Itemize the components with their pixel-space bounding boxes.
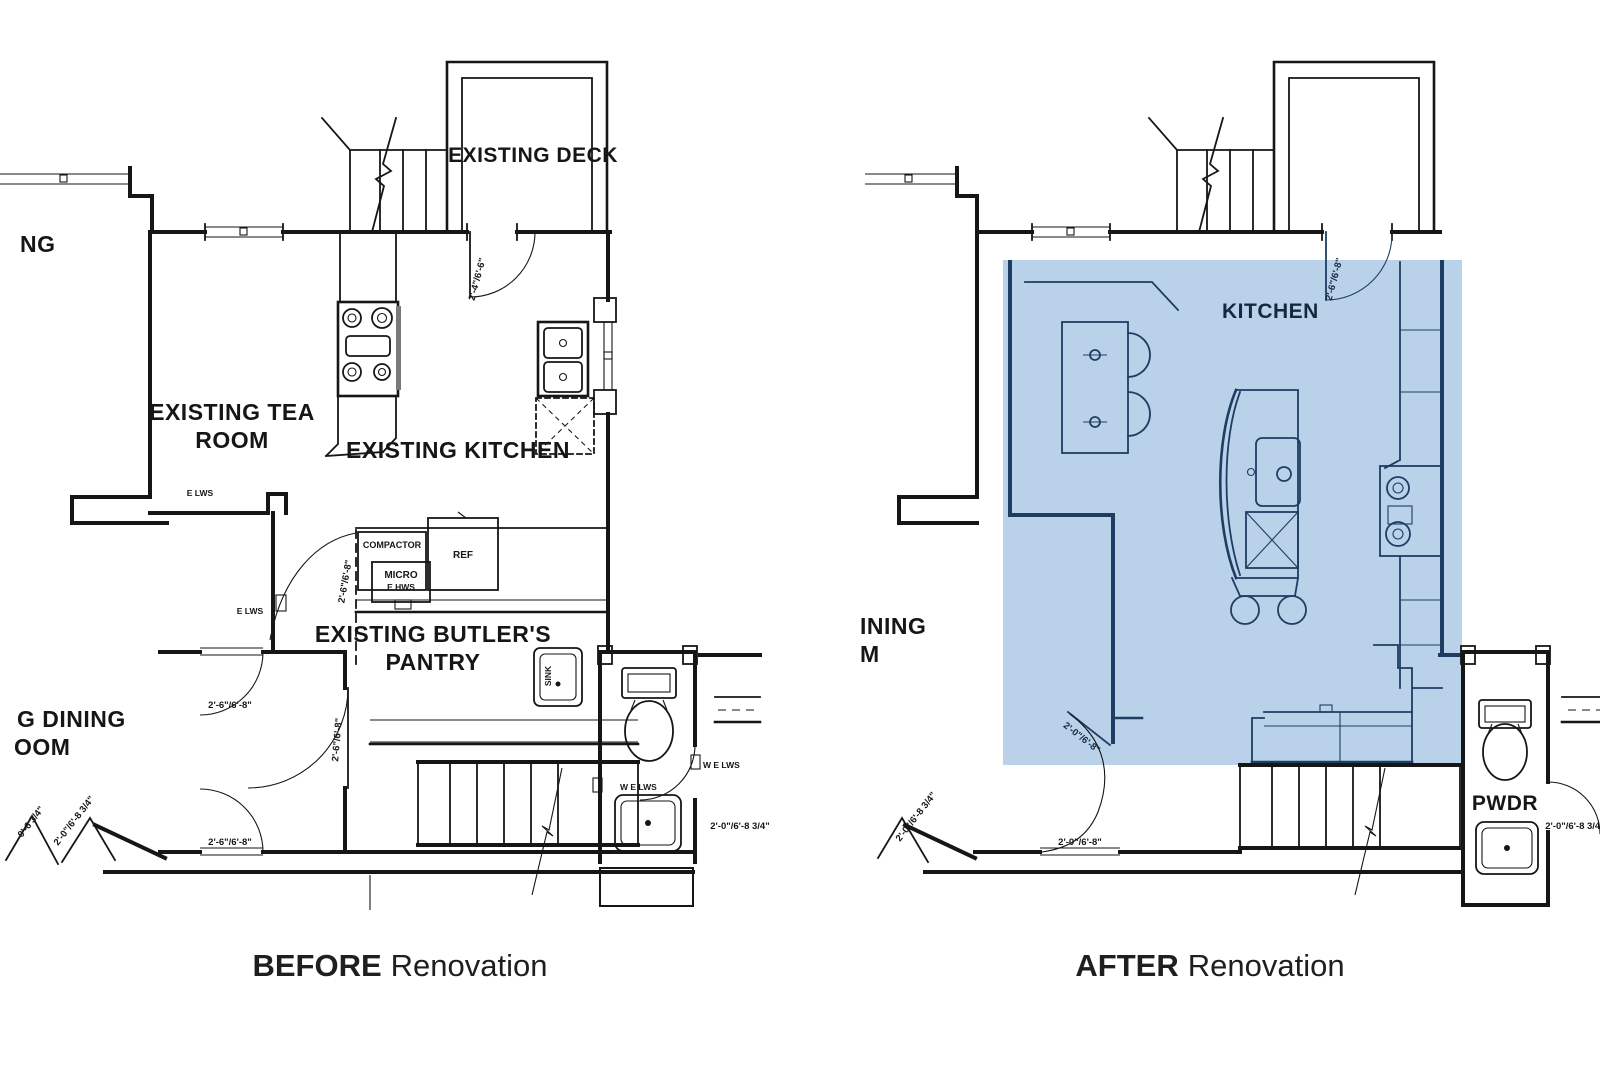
deck: EXISTING DECK <box>447 62 618 232</box>
bathroom: 2'-0"/6'-8 3/4" W E LWS W E LWS <box>593 646 770 906</box>
plans-svg: EXISTING DECK 2'-4"/6'-6" EXIST <box>0 0 1600 1070</box>
bath-lws-right: W E LWS <box>703 760 740 770</box>
deck-stairs <box>322 118 447 232</box>
tea-room: EXISTING TEA ROOM E LWS E LWS NG <box>20 231 315 652</box>
tea-lws-note: E LWS <box>187 488 214 498</box>
after-dining-partial-1: INING <box>860 613 926 639</box>
after-caption-bold: AFTER <box>1075 948 1178 984</box>
dining-partial-2: OOM <box>14 734 70 760</box>
deck-label: EXISTING DECK <box>448 144 618 167</box>
tea-room-label-2: ROOM <box>195 427 269 453</box>
window-top-left <box>0 168 152 232</box>
pantry-door: 2'-6"/6'-8" <box>270 530 356 668</box>
bottom-walls-after: 2'-0"/6'-8 3/4" 2'-0"/6'-8" <box>878 790 1460 872</box>
bottom-opening-dim: 2'-0"/6'-8" <box>1058 837 1102 848</box>
after-caption: AFTER Renovation <box>810 948 1600 998</box>
butlers-pantry: EXISTING BUTLER'S PANTRY SINK <box>315 621 638 744</box>
kitchen-label: EXISTING KITCHEN <box>346 437 570 463</box>
micro-hws-note: E HWS <box>387 582 415 592</box>
pantry-sink-label: SINK <box>543 665 553 686</box>
stove <box>326 232 401 456</box>
corridor-lws-note: E LWS <box>237 606 264 616</box>
pantry-label-1: EXISTING BUTLER'S <box>315 621 551 647</box>
tea-room-label-1: EXISTING TEA <box>149 399 315 425</box>
compactor-label: COMPACTOR <box>363 540 422 550</box>
living-partial-label: NG <box>20 231 56 257</box>
ref-label: REF <box>453 550 473 561</box>
bath-door-dim: 2'-0"/6'-8 3/4" <box>710 821 769 832</box>
opening-lower-dim: 2'-6"/6'-8" <box>208 837 252 848</box>
after-kitchen-label: KITCHEN <box>1222 300 1319 323</box>
after-dining-partial-2: M <box>860 641 880 667</box>
bath-lws-left: W E LWS <box>620 782 657 792</box>
after-floor-plan: 2'-6"/6'-8" KITCHEN INING M 2'-0"/6'-8" <box>860 62 1600 905</box>
top-wall: 2'-4"/6'-6" <box>150 224 610 302</box>
hall-door-dim: 2'-6"/6'-8" <box>330 718 345 762</box>
wall-cracks: 0'-6 3/4" 2'-0"/6'-8 3/4" <box>6 794 165 864</box>
window-top-left-after <box>865 168 977 232</box>
micro-label: MICRO <box>384 570 418 581</box>
opening-upper-dim: 2'-6"/6'-8" <box>208 700 252 711</box>
powder-room: 2'-0"/6'-8 3/4" PWDR <box>1461 646 1600 905</box>
hall-door: 2'-6"/6'-8" <box>248 652 348 852</box>
deck-stairs-after <box>1149 118 1274 232</box>
crack-large-dim: 2'-0"/6'-8 3/4" <box>52 794 97 848</box>
appliance-row: COMPACTOR REF MICRO E HWS <box>356 512 608 612</box>
before-caption-rest: Renovation <box>391 948 548 984</box>
before-caption-bold: BEFORE <box>252 948 381 984</box>
after-caption-rest: Renovation <box>1188 948 1345 984</box>
pwdr-door-dim: 2'-0"/6'-8 3/4" <box>1545 821 1600 832</box>
pwdr-label: PWDR <box>1472 792 1538 815</box>
renovation-highlight <box>1003 260 1462 765</box>
stairs-after <box>1240 765 1460 895</box>
stairs <box>370 762 638 910</box>
pantry-door-dim: 2'-6"/6'-8" <box>336 559 354 604</box>
lower-left-doors: 2'-6"/6'-8" 2'-6"/6'-8" <box>160 648 345 855</box>
hall-stubs <box>700 655 760 722</box>
left-wall-after <box>899 232 977 523</box>
pantry-label-2: PANTRY <box>386 649 481 675</box>
before-floor-plan: EXISTING DECK 2'-4"/6'-6" EXIST <box>0 62 770 910</box>
hatched-area <box>600 868 693 906</box>
deck-after <box>1274 62 1434 232</box>
floor-plan-comparison: EXISTING DECK 2'-4"/6'-6" EXIST <box>0 0 1600 1070</box>
before-caption: BEFORE Renovation <box>0 948 800 998</box>
dining-partial-1: G DINING <box>17 706 126 732</box>
hall-stubs-after <box>1562 697 1600 722</box>
